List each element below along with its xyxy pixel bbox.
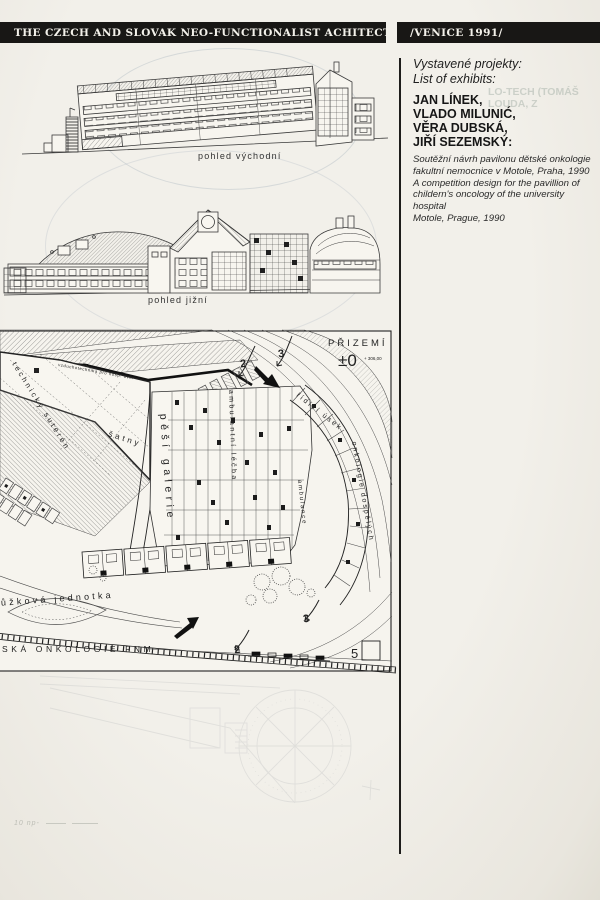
- intro-line-en: List of exhibits:: [413, 72, 597, 87]
- plan-level-note: + 306,00: [364, 356, 382, 361]
- site-plan-drawing: PŘIZEMÍ ±0 + 306,00 technický suterén vz…: [0, 330, 392, 672]
- project-description-cs: fakultní nemocnice v Motole, Praha, 1990: [413, 166, 597, 178]
- east-elevation-drawing: [18, 58, 390, 162]
- project-description-en: Motole, Prague, 1990: [413, 213, 597, 225]
- venue-label: /VENICE 1991/: [397, 27, 503, 39]
- south-elevation-caption: pohled jižní: [148, 295, 208, 305]
- architect-name: JIŘÍ SEZEMSKÝ:: [413, 135, 597, 149]
- plan-level: ±0: [338, 351, 357, 370]
- architect-name: VLADO MILUNIĆ,: [413, 107, 597, 121]
- south-elevation-drawing: [2, 190, 380, 304]
- project-description-cs: Soutěžní návrh pavilonu dětské onkologie: [413, 154, 597, 166]
- scanned-catalog-page: THE CZECH AND SLOVAK NEO-FUNCTIONALIST A…: [0, 0, 600, 900]
- intro-line-cs: Vystavené projekty:: [413, 57, 597, 72]
- sheet-number: 5: [351, 646, 358, 661]
- showthrough-drawing: [40, 668, 560, 858]
- page-title: THE CZECH AND SLOVAK NEO-FUNCTIONALIST A…: [0, 27, 418, 39]
- project-description-en: A competition design for the pavillion o…: [413, 178, 597, 190]
- plan-title: PŘIZEMÍ: [328, 338, 388, 349]
- architect-name: JAN LÍNEK,: [413, 93, 597, 107]
- label-street: SKÁ ONKOLOGIE FNM: [2, 644, 154, 654]
- architect-name: VĚRA DUBSKÁ,: [413, 121, 597, 135]
- header-bar-right: /VENICE 1991/: [397, 22, 600, 43]
- exhibit-column: Vystavené projekty: List of exhibits: JA…: [413, 57, 597, 225]
- east-elevation-caption: pohled východní: [198, 151, 282, 161]
- pencil-note: 10 np-: [14, 820, 98, 827]
- project-description-en: childern's oncology of the university ho…: [413, 189, 597, 213]
- header-bar: THE CZECH AND SLOVAK NEO-FUNCTIONALIST A…: [0, 22, 386, 43]
